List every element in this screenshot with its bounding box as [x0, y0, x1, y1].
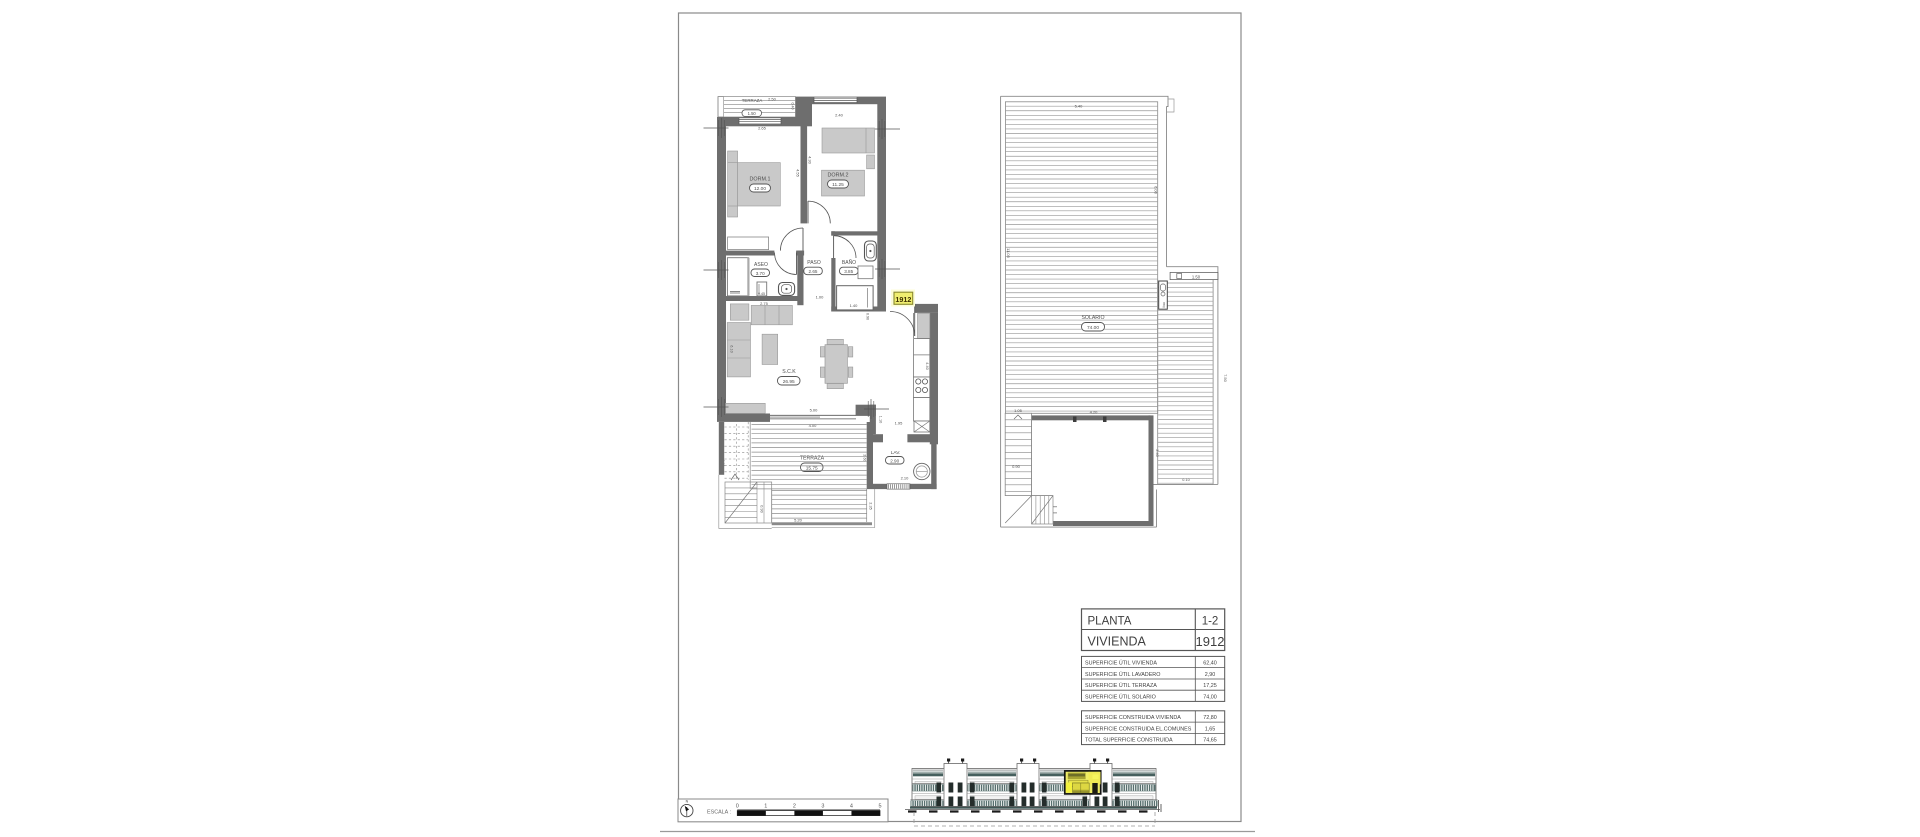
svg-text:6.00: 6.00	[1154, 186, 1159, 195]
svg-text:11.05: 11.05	[1006, 248, 1011, 258]
svg-text:DORM.1: DORM.1	[750, 177, 771, 183]
svg-text:0.90: 0.90	[1012, 464, 1021, 469]
svg-text:74,00: 74,00	[1203, 694, 1217, 700]
svg-text:6.10: 6.10	[730, 345, 734, 352]
svg-text:1.50: 1.50	[1192, 274, 1201, 279]
svg-text:5.00: 5.00	[810, 408, 819, 413]
svg-text:1.50: 1.50	[748, 111, 757, 116]
svg-text:BAÑO: BAÑO	[842, 259, 856, 266]
svg-text:2.35: 2.35	[869, 502, 873, 509]
svg-text:1.95: 1.95	[895, 421, 904, 426]
svg-text:5.40: 5.40	[1075, 104, 1084, 109]
svg-text:62,40: 62,40	[1203, 661, 1217, 667]
svg-text:VIVIENDA: VIVIENDA	[1088, 635, 1147, 649]
svg-text:74.00: 74.00	[1087, 325, 1099, 331]
svg-text:1.40: 1.40	[850, 303, 859, 308]
svg-text:1.00: 1.00	[816, 295, 825, 300]
svg-text:2.65: 2.65	[809, 269, 818, 274]
svg-text:PLANTA: PLANTA	[1088, 615, 1132, 627]
svg-text:2.10: 2.10	[901, 476, 910, 481]
svg-text:BBQ: BBQ	[1162, 302, 1166, 307]
svg-text:0.10: 0.10	[1182, 478, 1189, 482]
svg-text:2.50: 2.50	[768, 97, 777, 102]
svg-text:SUPERFICIE CONSTRUIDA EL.COMUN: SUPERFICIE CONSTRUIDA EL.COMUNES	[1085, 726, 1192, 732]
svg-text:1.10: 1.10	[879, 416, 883, 423]
svg-text:TERRAZA: TERRAZA	[742, 98, 763, 103]
svg-text:SUPERFICIE ÚTIL VIVIENDA: SUPERFICIE ÚTIL VIVIENDA	[1085, 660, 1157, 667]
svg-text:1,65: 1,65	[1205, 726, 1216, 732]
svg-text:4.40: 4.40	[925, 362, 929, 369]
svg-text:2.40: 2.40	[1155, 449, 1159, 456]
svg-text:2.40: 2.40	[835, 113, 844, 118]
svg-text:LAV.: LAV.	[891, 450, 901, 456]
svg-text:PASO: PASO	[807, 260, 821, 266]
svg-text:TOTAL SUPERFICIE CONSTRUIDA: TOTAL SUPERFICIE CONSTRUIDA	[1085, 738, 1173, 744]
svg-text:72,80: 72,80	[1203, 715, 1217, 721]
svg-text:DORM.2: DORM.2	[828, 173, 849, 179]
svg-text:SUPERFICIE ÚTIL SOLARIO: SUPERFICIE ÚTIL SOLARIO	[1085, 693, 1156, 700]
svg-text:26.95: 26.95	[783, 379, 795, 385]
svg-text:0.40: 0.40	[791, 103, 795, 110]
svg-text:0.90: 0.90	[760, 505, 764, 512]
svg-text:3.85: 3.85	[844, 269, 853, 274]
svg-text:2.65: 2.65	[758, 126, 767, 131]
svg-text:4: 4	[850, 803, 853, 809]
svg-text:1: 1	[764, 803, 767, 809]
svg-text:74,65: 74,65	[1203, 738, 1217, 744]
svg-text:1912: 1912	[1196, 634, 1225, 649]
svg-text:7.50: 7.50	[1223, 374, 1228, 383]
svg-text:S.C.K: S.C.K	[782, 369, 796, 375]
svg-text:2.75: 2.75	[760, 301, 769, 306]
svg-text:1-2: 1-2	[1202, 615, 1219, 627]
svg-text:SUPERFICIE ÚTIL TERRAZA: SUPERFICIE ÚTIL TERRAZA	[1085, 682, 1157, 689]
svg-text:2.90: 2.90	[890, 458, 899, 463]
svg-text:1912: 1912	[895, 295, 911, 304]
svg-text:4.55: 4.55	[796, 169, 801, 178]
svg-text:4.20: 4.20	[1090, 410, 1099, 415]
svg-text:12.00: 12.00	[754, 186, 766, 192]
svg-text:4.30: 4.30	[808, 156, 813, 165]
svg-text:2,90: 2,90	[1205, 672, 1216, 678]
svg-text:ESCALA :: ESCALA :	[707, 809, 731, 815]
svg-text:0: 0	[736, 803, 739, 809]
svg-text:3.70: 3.70	[756, 271, 765, 276]
svg-text:2: 2	[793, 803, 796, 809]
svg-text:SUPERFICIE CONSTRUIDA VIVIENDA: SUPERFICIE CONSTRUIDA VIVIENDA	[1085, 715, 1181, 721]
svg-text:5: 5	[878, 803, 881, 809]
svg-text:SUPERFICIE ÚTIL LAVADERO: SUPERFICIE ÚTIL LAVADERO	[1085, 671, 1160, 678]
svg-text:4.00: 4.00	[809, 423, 818, 428]
svg-text:0.90: 0.90	[866, 313, 870, 320]
svg-text:2.60: 2.60	[863, 454, 867, 461]
svg-text:1.05: 1.05	[1014, 408, 1023, 413]
svg-text:3: 3	[821, 803, 824, 809]
svg-text:ASEO: ASEO	[754, 262, 768, 268]
svg-text:17,25: 17,25	[1203, 683, 1217, 689]
svg-text:0.45: 0.45	[758, 292, 765, 296]
svg-text:11.25: 11.25	[832, 182, 844, 188]
svg-text:SOLARIO: SOLARIO	[1081, 315, 1104, 321]
